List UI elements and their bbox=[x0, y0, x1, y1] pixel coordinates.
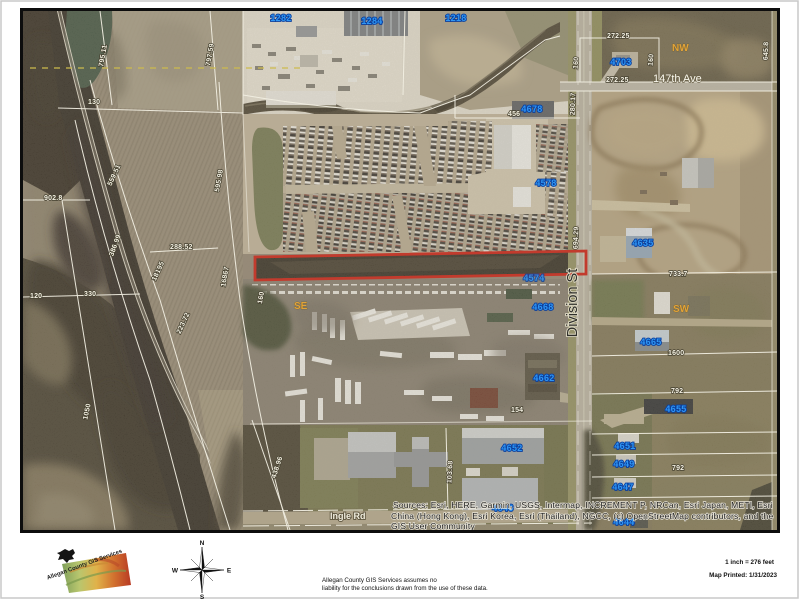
svg-text:Sources: Esri, HERE, Garmin, U: Sources: Esri, HERE, Garmin, USGS, Inter… bbox=[393, 500, 773, 510]
svg-text:4662: 4662 bbox=[533, 373, 554, 383]
svg-text:4649: 4649 bbox=[613, 459, 634, 469]
svg-text:4655: 4655 bbox=[665, 404, 686, 414]
svg-text:330: 330 bbox=[84, 291, 96, 298]
svg-text:4635: 4635 bbox=[632, 238, 653, 248]
svg-text:4651: 4651 bbox=[614, 441, 635, 451]
svg-text:280.17: 280.17 bbox=[570, 93, 578, 116]
svg-text:NW: NW bbox=[672, 43, 689, 54]
svg-text:SW: SW bbox=[673, 304, 690, 315]
svg-text:1282: 1282 bbox=[270, 13, 291, 23]
svg-text:4578: 4578 bbox=[535, 178, 556, 188]
svg-text:1284: 1284 bbox=[361, 16, 382, 26]
svg-text:1 inch = 276 feet: 1 inch = 276 feet bbox=[725, 559, 775, 566]
svg-text:272.25: 272.25 bbox=[606, 77, 629, 84]
svg-text:792: 792 bbox=[672, 465, 684, 472]
svg-text:4574: 4574 bbox=[523, 273, 544, 283]
svg-text:645.8: 645.8 bbox=[763, 42, 771, 61]
svg-text:China (Hong Kong), Esri Korea,: China (Hong Kong), Esri Korea, Esri (Tha… bbox=[391, 511, 773, 521]
svg-text:160: 160 bbox=[572, 56, 580, 69]
svg-text:130: 130 bbox=[88, 99, 100, 106]
svg-text:liability for the conclusions: liability for the conclusions drawn from… bbox=[322, 585, 488, 592]
svg-text:1218: 1218 bbox=[445, 13, 466, 23]
svg-text:288.52: 288.52 bbox=[170, 244, 193, 251]
svg-text:733.7: 733.7 bbox=[669, 271, 688, 278]
svg-text:Ingle Rd: Ingle Rd bbox=[330, 511, 366, 521]
svg-text:456: 456 bbox=[508, 111, 520, 118]
svg-text:272.25: 272.25 bbox=[607, 33, 630, 40]
svg-text:103.68: 103.68 bbox=[446, 460, 454, 483]
svg-text:1600: 1600 bbox=[668, 350, 684, 357]
svg-text:Allegan County GIS Services as: Allegan County GIS Services assumes no bbox=[322, 577, 437, 584]
svg-text:W: W bbox=[172, 568, 179, 575]
svg-text:Map Printed: 1/31/2023: Map Printed: 1/31/2023 bbox=[709, 572, 777, 579]
svg-text:SE: SE bbox=[294, 301, 308, 312]
svg-text:160: 160 bbox=[647, 53, 655, 66]
svg-text:694.29: 694.29 bbox=[573, 227, 581, 250]
svg-text:4665: 4665 bbox=[640, 337, 661, 347]
svg-text:147th Ave: 147th Ave bbox=[653, 73, 702, 85]
svg-text:792: 792 bbox=[671, 388, 683, 395]
svg-text:4668: 4668 bbox=[532, 302, 553, 312]
svg-text:S: S bbox=[200, 594, 205, 600]
svg-text:154: 154 bbox=[511, 407, 523, 414]
svg-text:120: 120 bbox=[30, 293, 42, 300]
svg-text:Division St: Division St bbox=[565, 269, 581, 338]
svg-text:4647: 4647 bbox=[612, 482, 633, 492]
svg-text:4703: 4703 bbox=[610, 57, 631, 67]
svg-text:GIS User Community: GIS User Community bbox=[391, 521, 475, 531]
svg-text:4678: 4678 bbox=[521, 104, 542, 114]
svg-text:N: N bbox=[200, 540, 205, 547]
svg-text:4652: 4652 bbox=[501, 443, 522, 453]
svg-text:E: E bbox=[227, 568, 232, 575]
svg-text:902.8: 902.8 bbox=[44, 195, 63, 202]
